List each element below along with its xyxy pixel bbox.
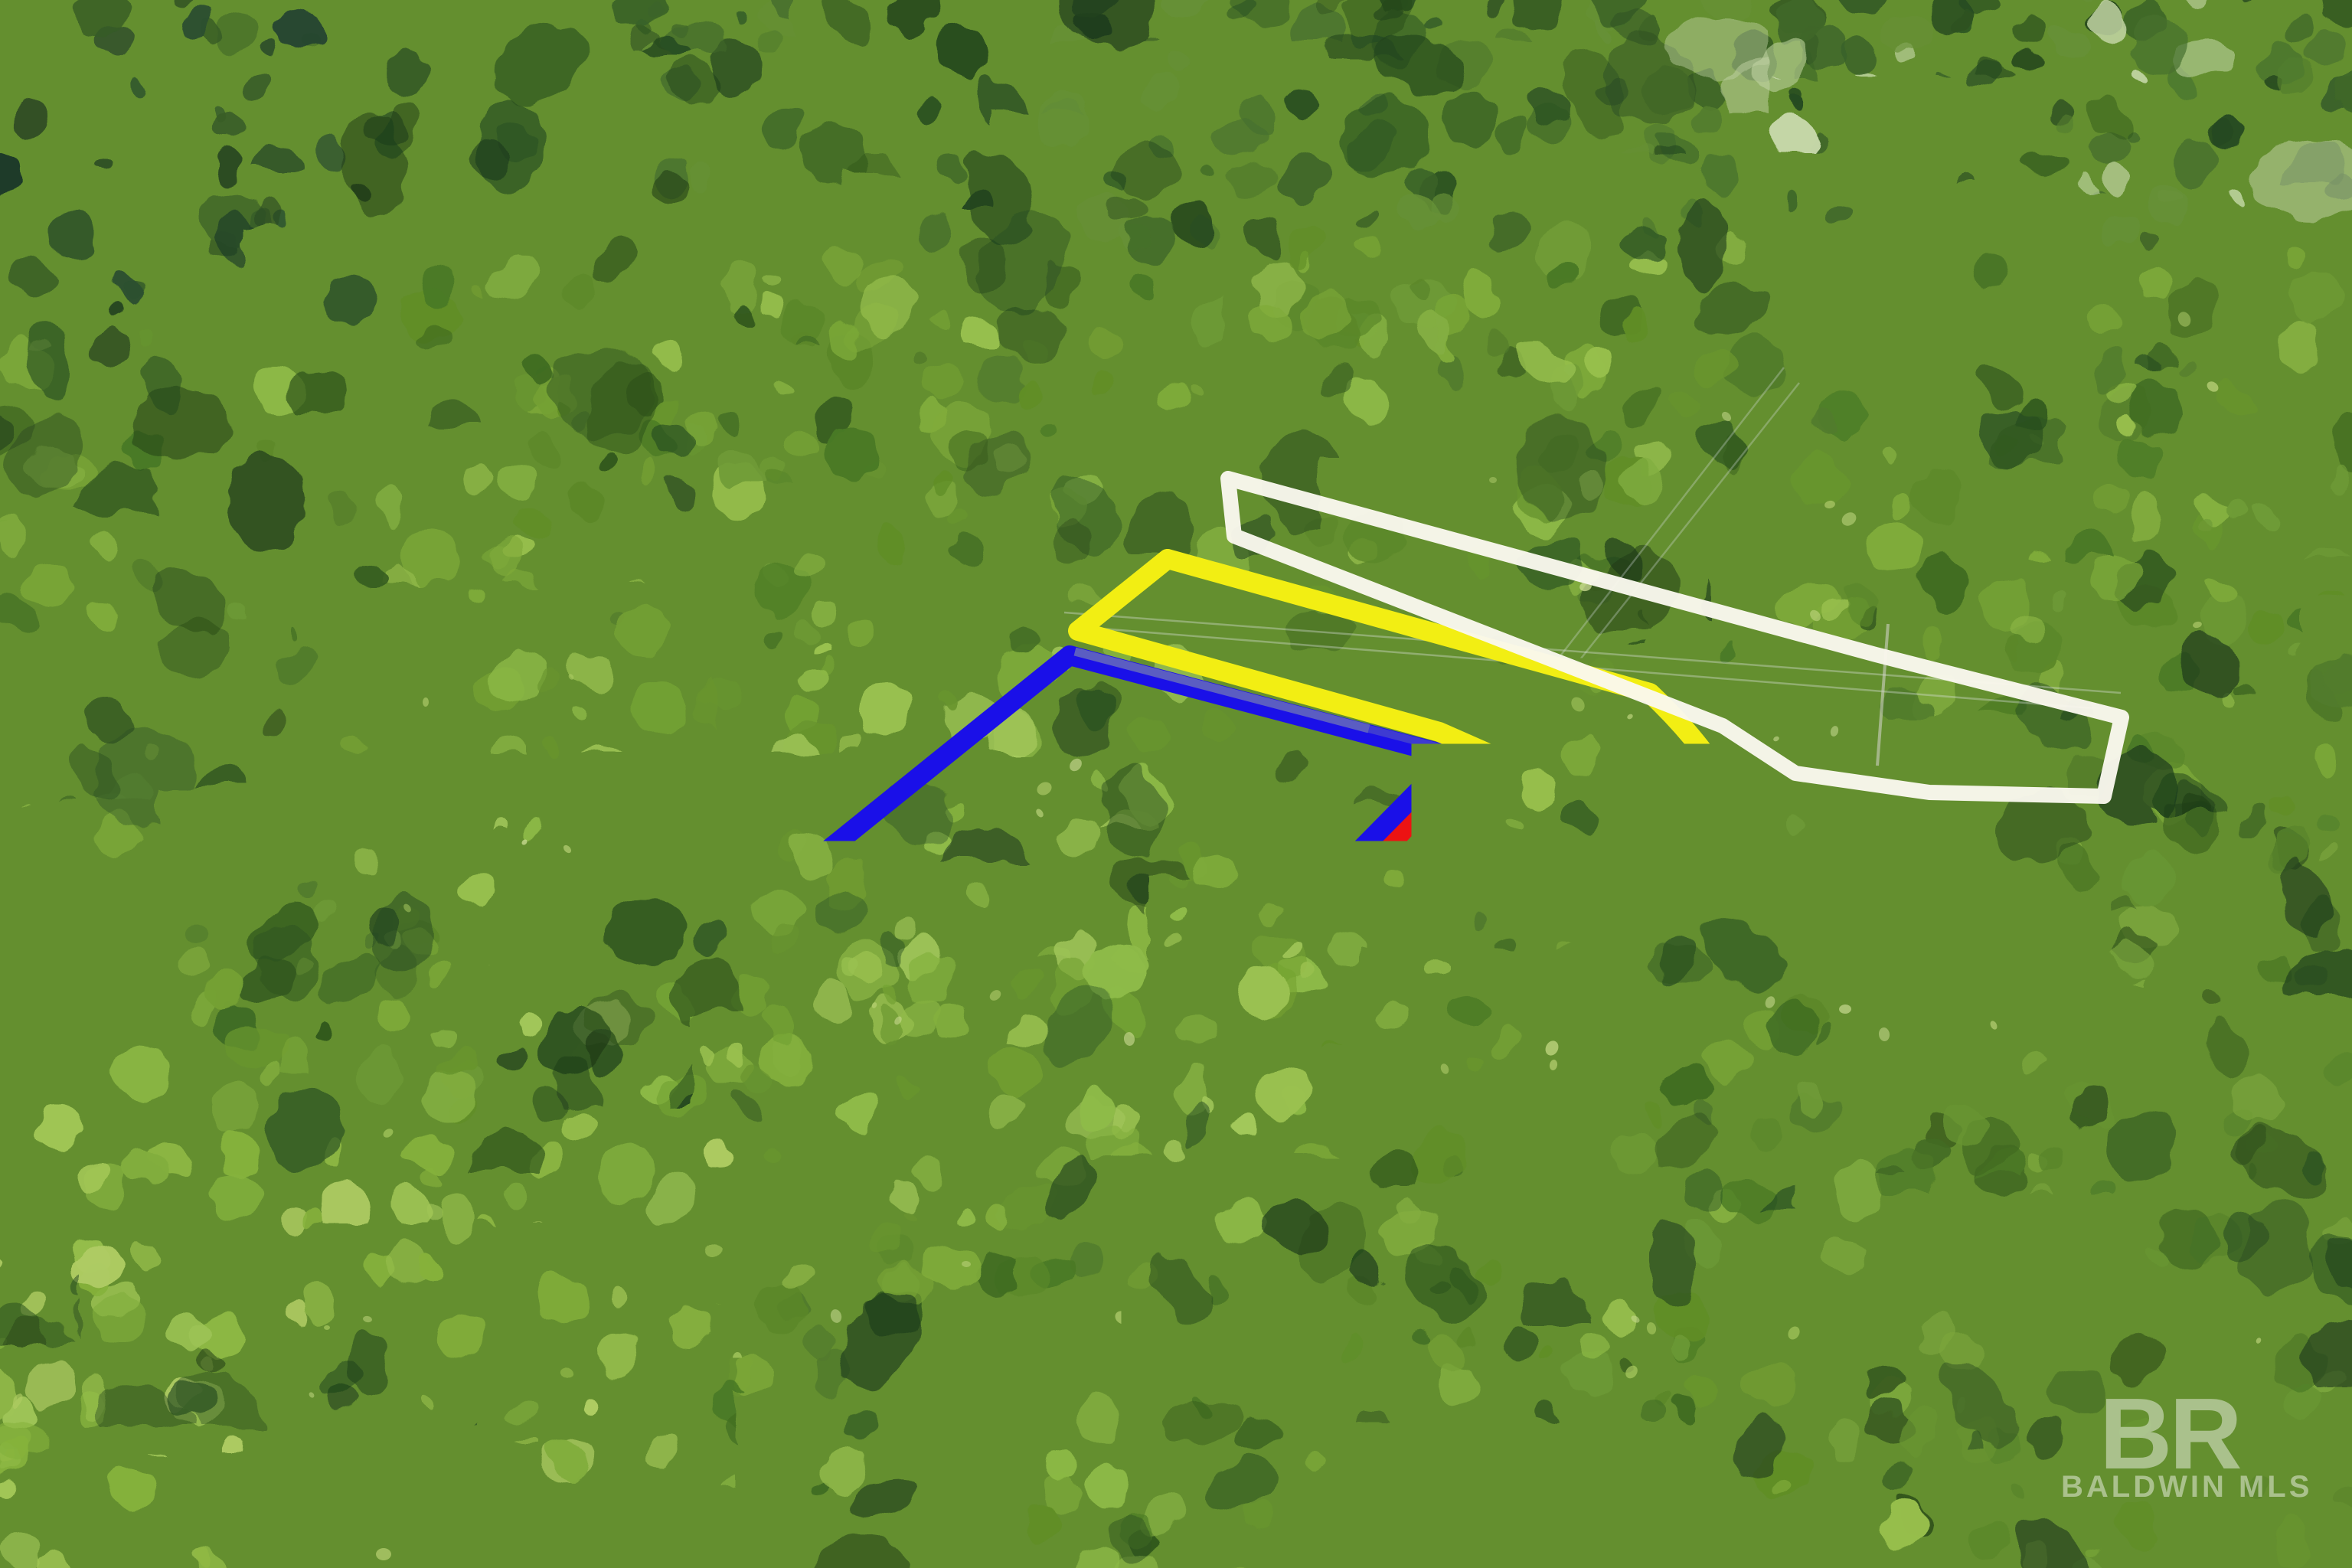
svg-text:BALDWIN MLS: BALDWIN MLS [2061,1470,2312,1504]
